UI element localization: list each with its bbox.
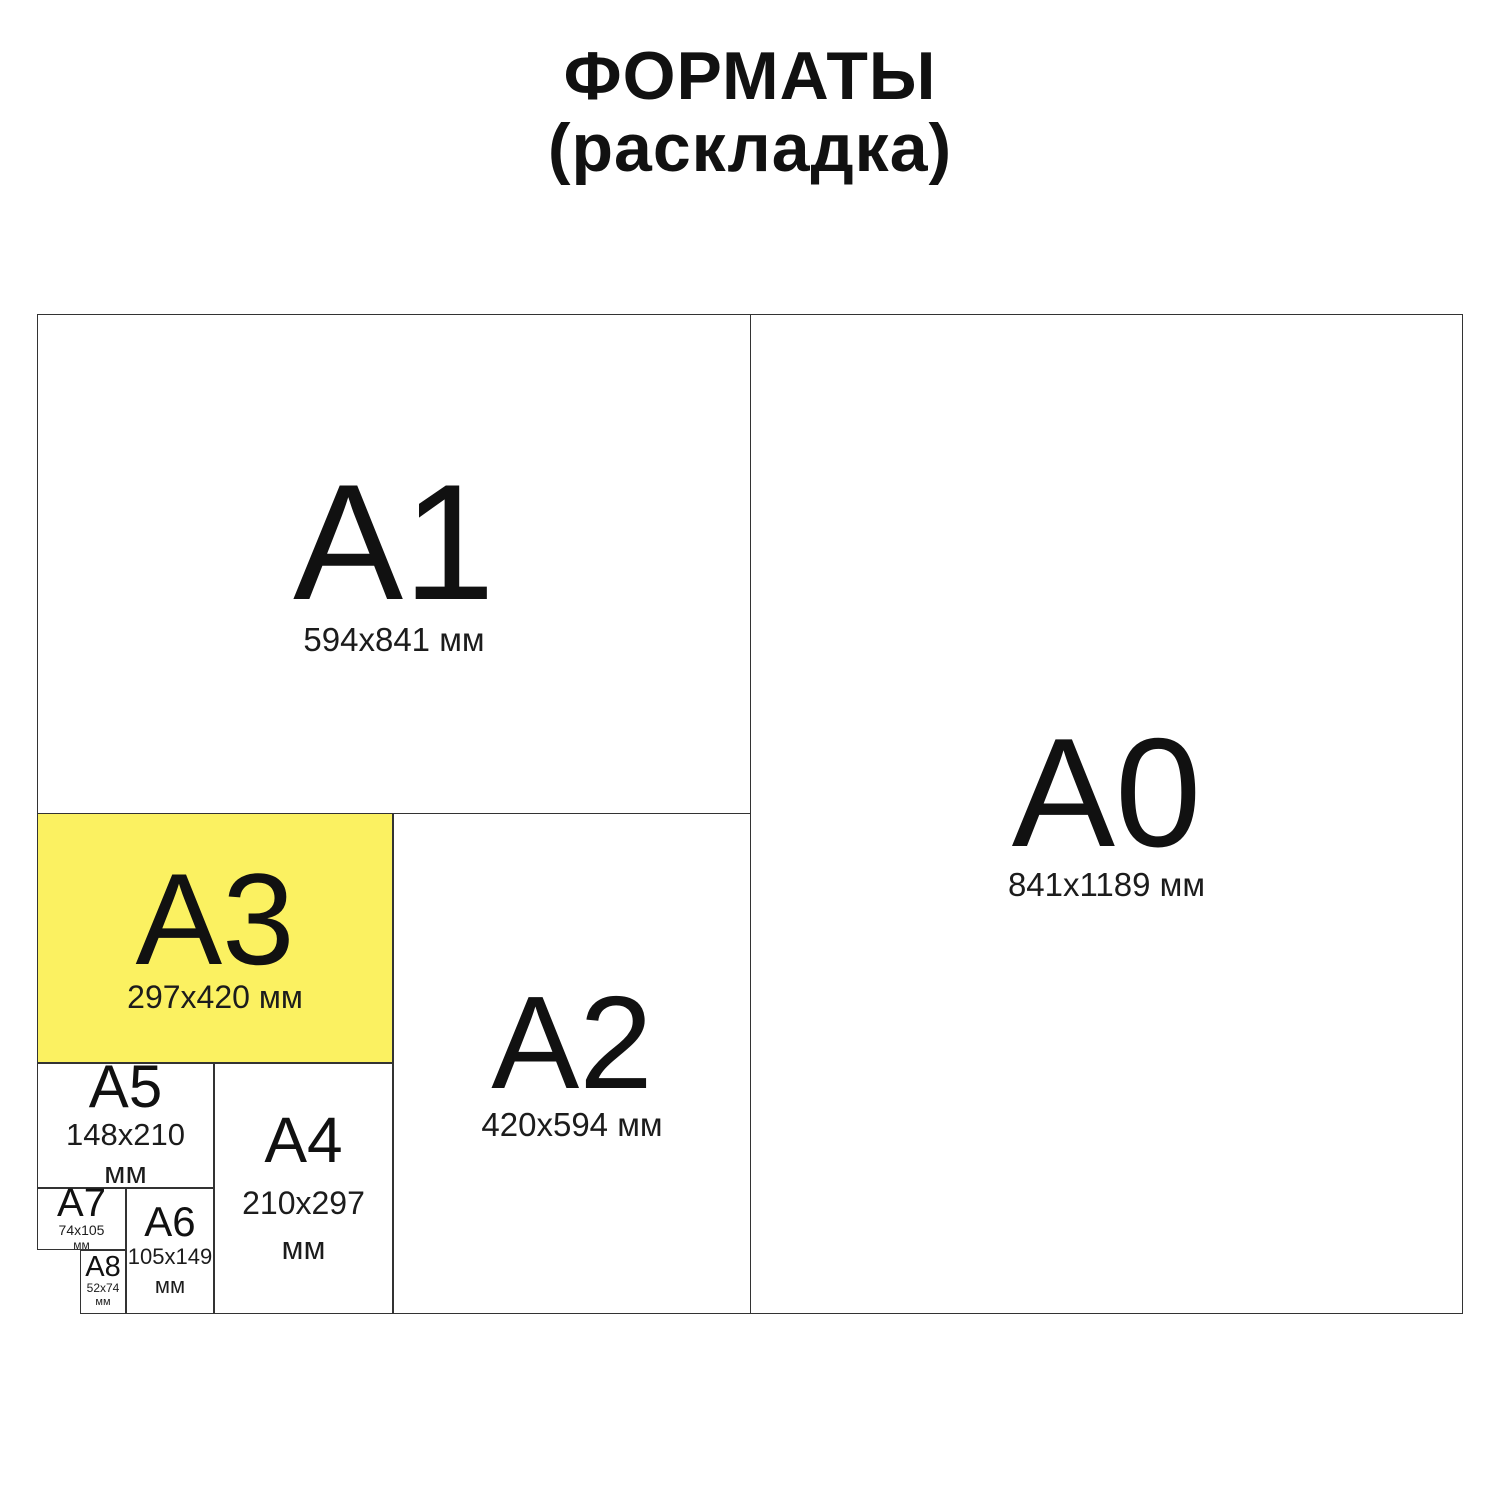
paper-a4-label: A4 [264,1112,342,1168]
paper-a1-dimensions: 594x841 мм [303,622,484,658]
paper-a8: A8 52x74 мм [80,1250,126,1314]
paper-a6-dimensions: 105x149 [128,1245,212,1269]
paper-a4-dimensions: 210x297 [242,1186,365,1221]
paper-a0-labels: A0 841x1189 мм [1008,725,1205,902]
paper-a4-labels: A4 210x297 мм [242,1112,365,1265]
paper-a8-dimensions: 52x74 [87,1282,120,1295]
paper-formats-figure: ФОРМАТЫ (раскладка) A1 594x841 мм A0 841… [0,0,1500,1500]
paper-a1-labels: A1 594x841 мм [293,470,495,658]
paper-a6-label: A6 [144,1204,195,1241]
paper-a7: A7 74x105 мм [37,1188,126,1250]
paper-a0: A0 841x1189 мм [750,314,1463,1314]
paper-a7-label: A7 [57,1186,106,1221]
paper-a3-dimensions: 297x420 мм [127,980,303,1015]
paper-a8-label: A8 [85,1255,120,1281]
paper-a7-dimensions: 74x105 [59,1223,105,1238]
paper-a6: A6 105x149 мм [126,1188,214,1314]
paper-a8-unit: мм [95,1297,110,1309]
paper-a5-labels: A5 148x210 мм [66,1061,185,1190]
paper-a2-labels: A2 420x594 мм [481,985,662,1143]
paper-a3-labels: A3 297x420 мм [127,862,303,1015]
paper-a2: A2 420x594 мм [393,813,751,1314]
paper-a5-unit: мм [104,1156,147,1189]
paper-a0-label: A0 [1012,725,1202,861]
paper-a0-dimensions: 841x1189 мм [1008,867,1205,903]
title-line-1: ФОРМАТЫ [0,40,1500,112]
title-line-2: (раскладка) [0,112,1500,184]
paper-a6-unit: мм [155,1274,185,1298]
paper-a2-label: A2 [491,985,652,1101]
paper-a3-label: A3 [135,862,294,976]
paper-a1-label: A1 [293,470,495,615]
paper-a4-unit: мм [282,1231,326,1266]
figure-title: ФОРМАТЫ (раскладка) [0,40,1500,184]
paper-a3: A3 297x420 мм [37,813,393,1063]
paper-a5-label: A5 [89,1061,162,1114]
paper-a5: A5 148x210 мм [37,1063,214,1188]
paper-a6-labels: A6 105x149 мм [128,1204,212,1298]
paper-a5-dimensions: 148x210 [66,1118,185,1151]
paper-a8-labels: A8 52x74 мм [85,1255,120,1308]
paper-a2-dimensions: 420x594 мм [481,1107,662,1143]
paper-a7-labels: A7 74x105 мм [57,1186,106,1251]
paper-a4: A4 210x297 мм [214,1063,393,1314]
paper-a1: A1 594x841 мм [37,314,751,814]
